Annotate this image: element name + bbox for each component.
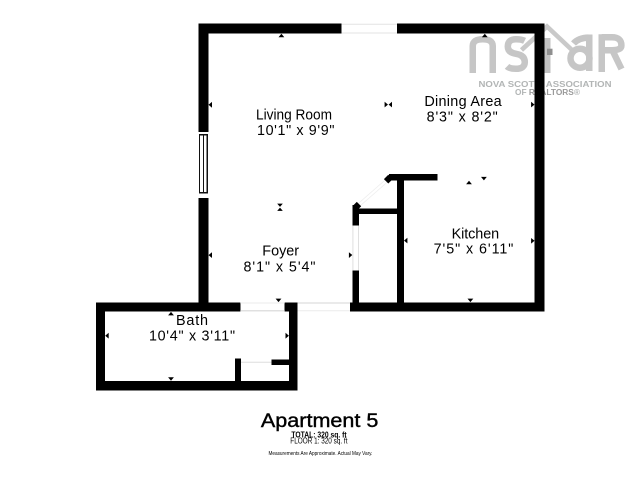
svg-text:Dining Area: Dining Area (424, 94, 501, 110)
svg-text:Foyer: Foyer (262, 244, 299, 260)
svg-text:Measurements Are Approximate.: Measurements Are Approximate. Actual May… (268, 451, 372, 457)
svg-text:8'3" x 8'2": 8'3" x 8'2" (427, 110, 498, 126)
svg-text:Apartment 5: Apartment 5 (261, 410, 379, 432)
svg-text:Kitchen: Kitchen (452, 226, 500, 242)
svg-text:FLOOR 1: 320 sq. ft: FLOOR 1: 320 sq. ft (290, 437, 348, 446)
svg-text:OF REALTORS®: OF REALTORS® (515, 88, 580, 97)
svg-text:7'5" x 6'11": 7'5" x 6'11" (434, 241, 514, 257)
svg-text:10'1" x 9'9": 10'1" x 9'9" (257, 123, 334, 139)
svg-text:8'1" x 5'4": 8'1" x 5'4" (244, 259, 316, 275)
svg-text:10'4" x 3'11": 10'4" x 3'11" (149, 328, 235, 344)
svg-text:Living Room: Living Room (256, 108, 332, 124)
svg-text:Bath: Bath (176, 313, 208, 329)
